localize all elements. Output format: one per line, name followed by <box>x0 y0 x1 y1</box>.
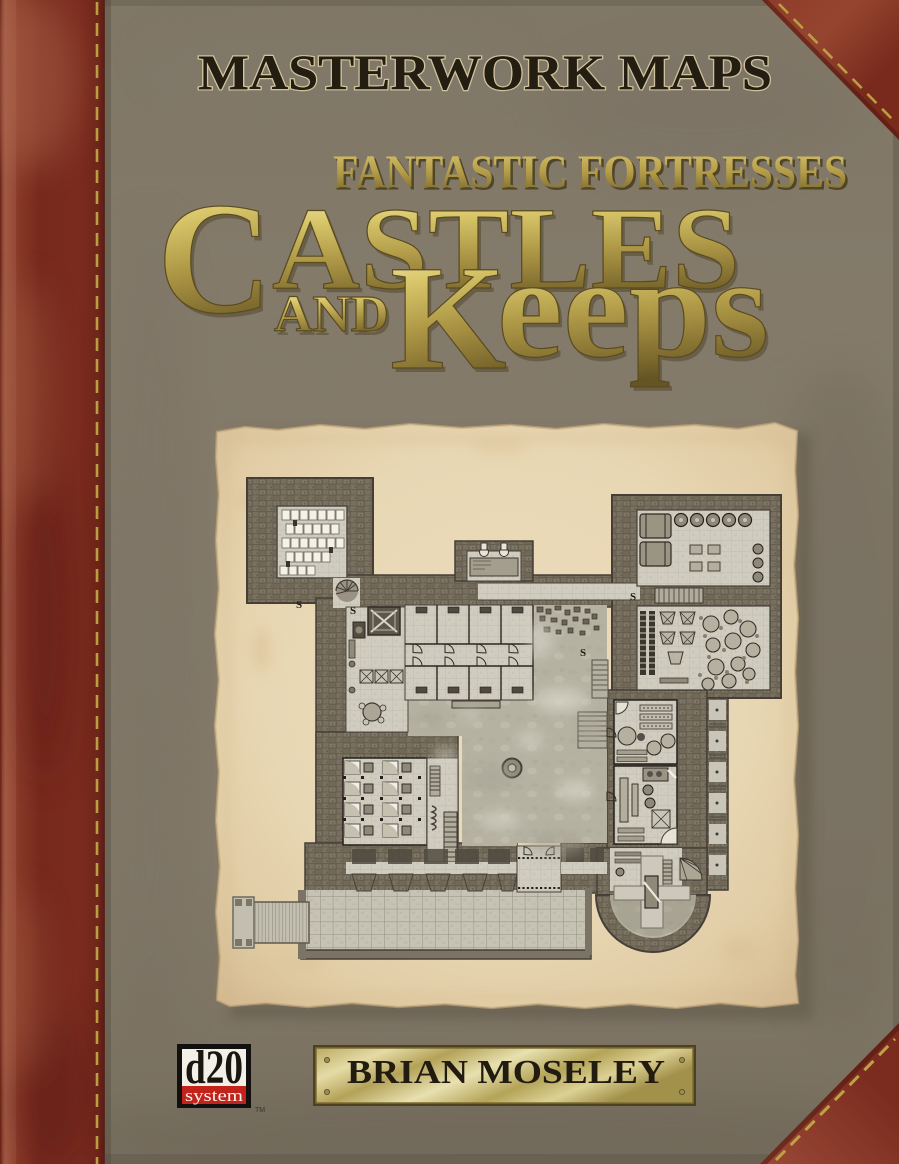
svg-text:BRIAN MOSELEY: BRIAN MOSELEY <box>347 1054 665 1091</box>
svg-text:C: C <box>157 169 273 347</box>
svg-text:AND: AND <box>274 286 389 343</box>
svg-text:system: system <box>185 1086 243 1105</box>
svg-text:TM: TM <box>255 1107 265 1114</box>
svg-text:MASTERWORK MAPS: MASTERWORK MAPS <box>198 44 772 100</box>
svg-text:eeps: eeps <box>497 228 769 388</box>
svg-text:S: S <box>296 599 302 611</box>
svg-text:S: S <box>350 605 356 617</box>
svg-text:S: S <box>580 647 586 659</box>
svg-text:S: S <box>630 591 636 603</box>
svg-text:K: K <box>390 235 507 401</box>
